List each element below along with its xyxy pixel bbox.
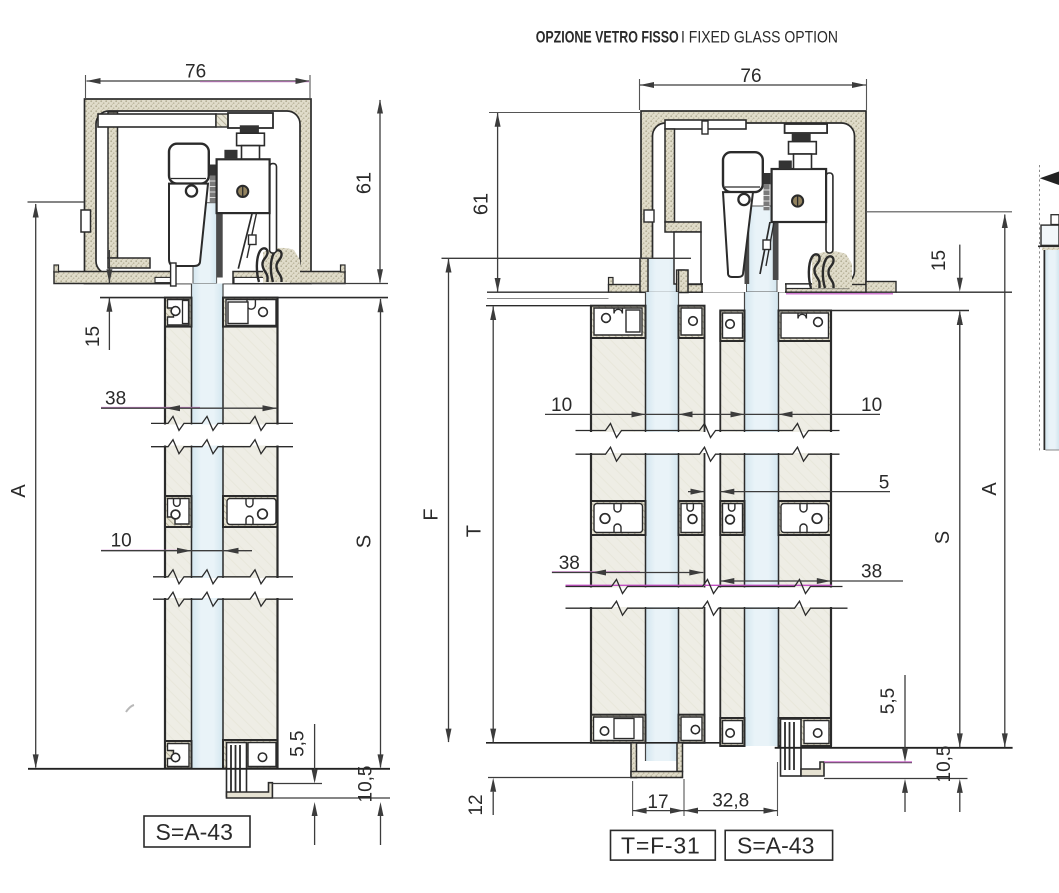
svg-text:S: S	[932, 531, 954, 544]
svg-text:5,5: 5,5	[878, 688, 899, 714]
svg-text:61: 61	[471, 193, 493, 215]
svg-text:5: 5	[879, 473, 890, 494]
svg-text:10: 10	[111, 530, 132, 551]
svg-text:A: A	[8, 484, 30, 498]
svg-text:76: 76	[185, 61, 206, 82]
svg-text:38: 38	[559, 553, 580, 574]
svg-text:T=F-31: T=F-31	[621, 833, 701, 859]
svg-text:76: 76	[740, 66, 761, 87]
svg-text:10,5: 10,5	[356, 766, 377, 803]
svg-text:S=A-43: S=A-43	[737, 833, 814, 859]
svg-text:38: 38	[861, 562, 882, 583]
svg-text:38: 38	[105, 389, 126, 410]
svg-text:12: 12	[466, 794, 487, 815]
svg-text:15: 15	[929, 250, 950, 271]
svg-text:A: A	[979, 482, 1001, 496]
svg-text:10: 10	[861, 395, 882, 416]
svg-text:15: 15	[83, 326, 104, 347]
svg-text:32,8: 32,8	[712, 791, 749, 812]
svg-text:10: 10	[551, 395, 572, 416]
svg-text:S=A-43: S=A-43	[156, 819, 233, 845]
svg-text:F: F	[421, 508, 443, 520]
svg-text:T: T	[464, 525, 486, 537]
svg-text:17: 17	[647, 792, 668, 813]
svg-text:5,5: 5,5	[288, 730, 309, 756]
svg-text:10,5: 10,5	[934, 746, 955, 783]
svg-text:OPZIONE VETRO FISSOI FIXED GLA: OPZIONE VETRO FISSOI FIXED GLASS OPTION	[536, 29, 838, 47]
svg-text:S: S	[354, 535, 376, 548]
svg-text:61: 61	[354, 172, 376, 194]
